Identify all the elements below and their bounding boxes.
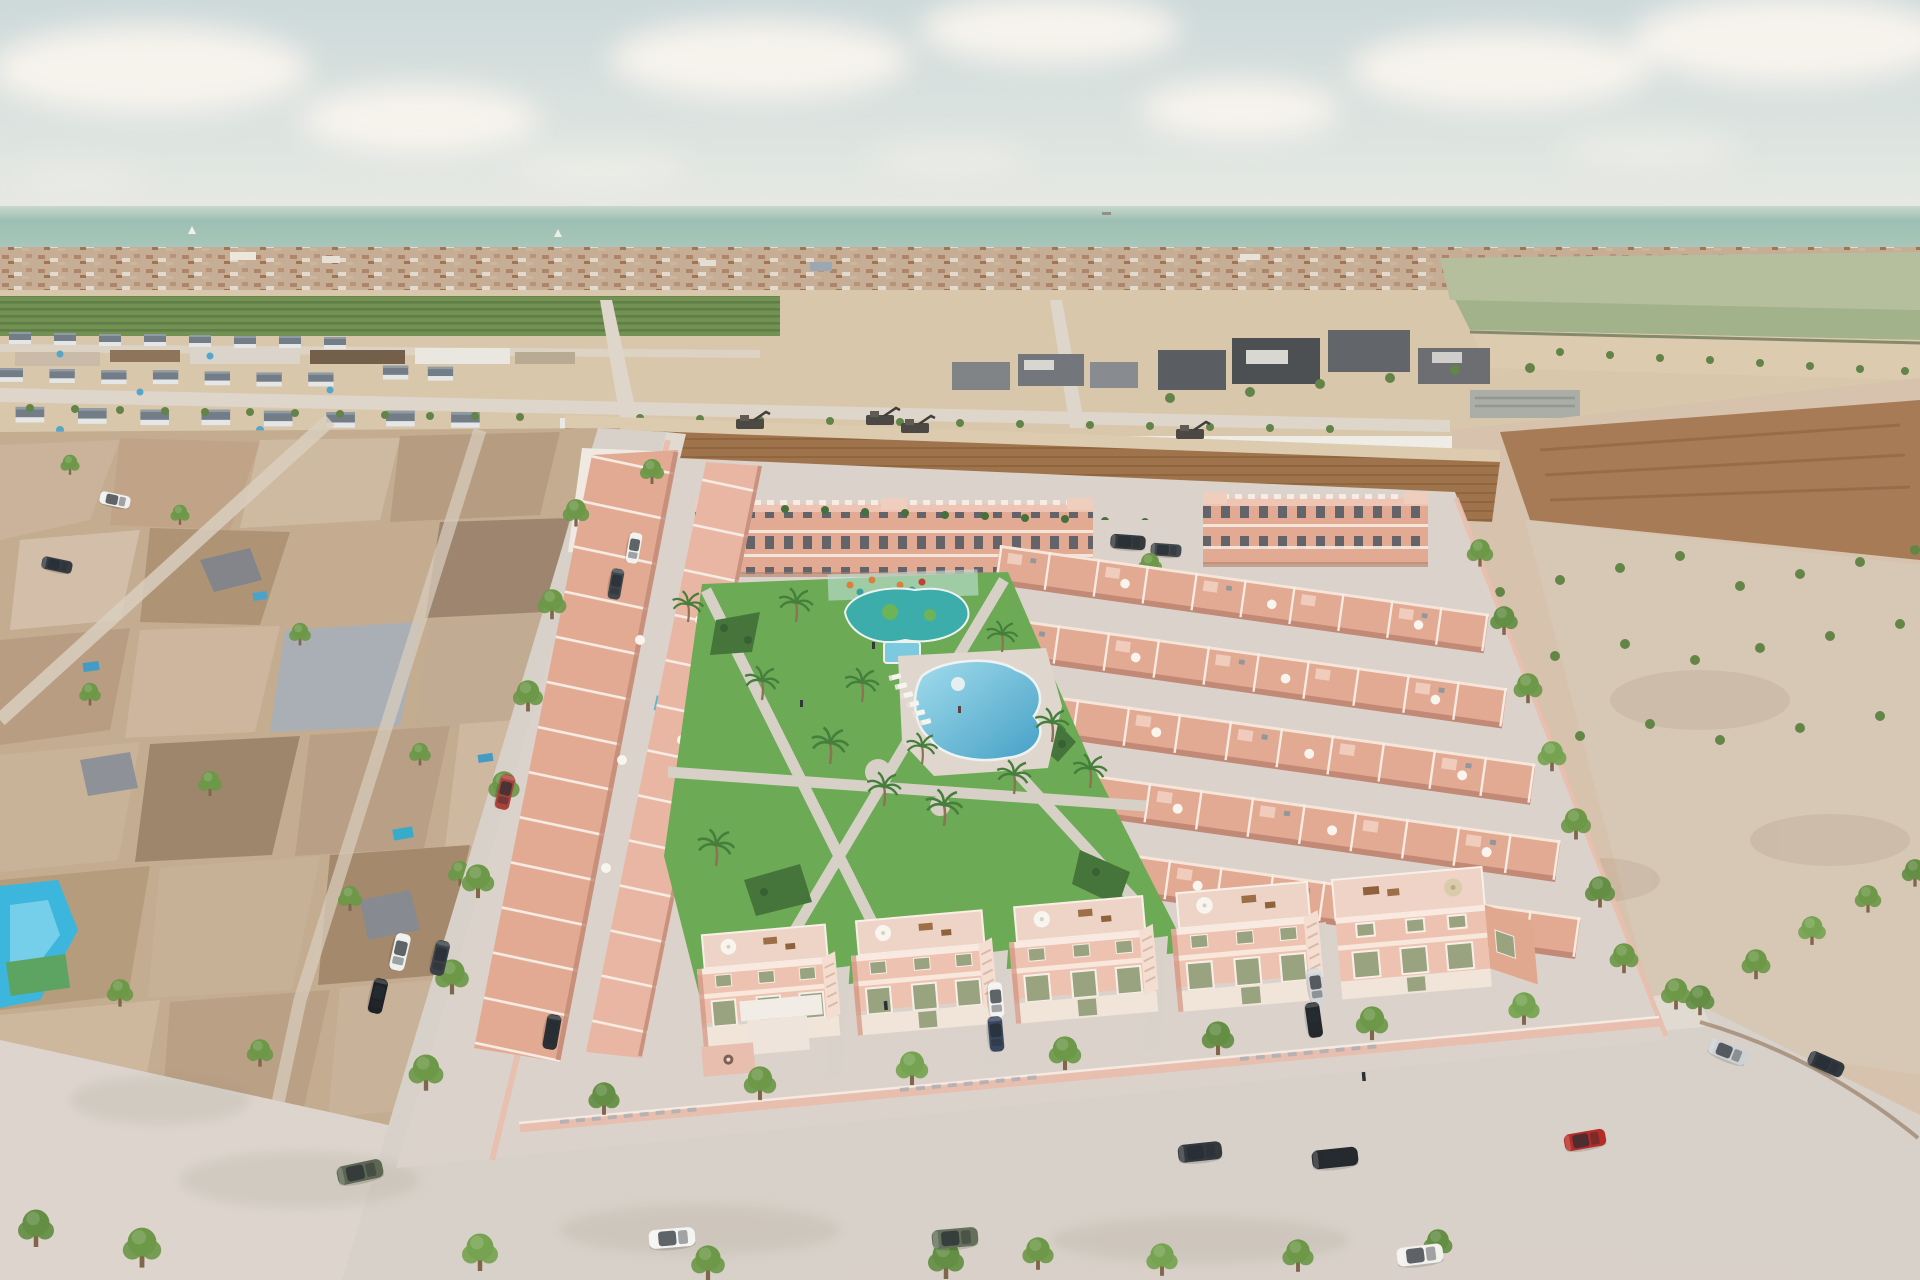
atmospheric-haze — [0, 0, 1920, 1280]
scene-canvas — [0, 0, 1920, 1280]
aerial-render-scene — [0, 0, 1920, 1280]
